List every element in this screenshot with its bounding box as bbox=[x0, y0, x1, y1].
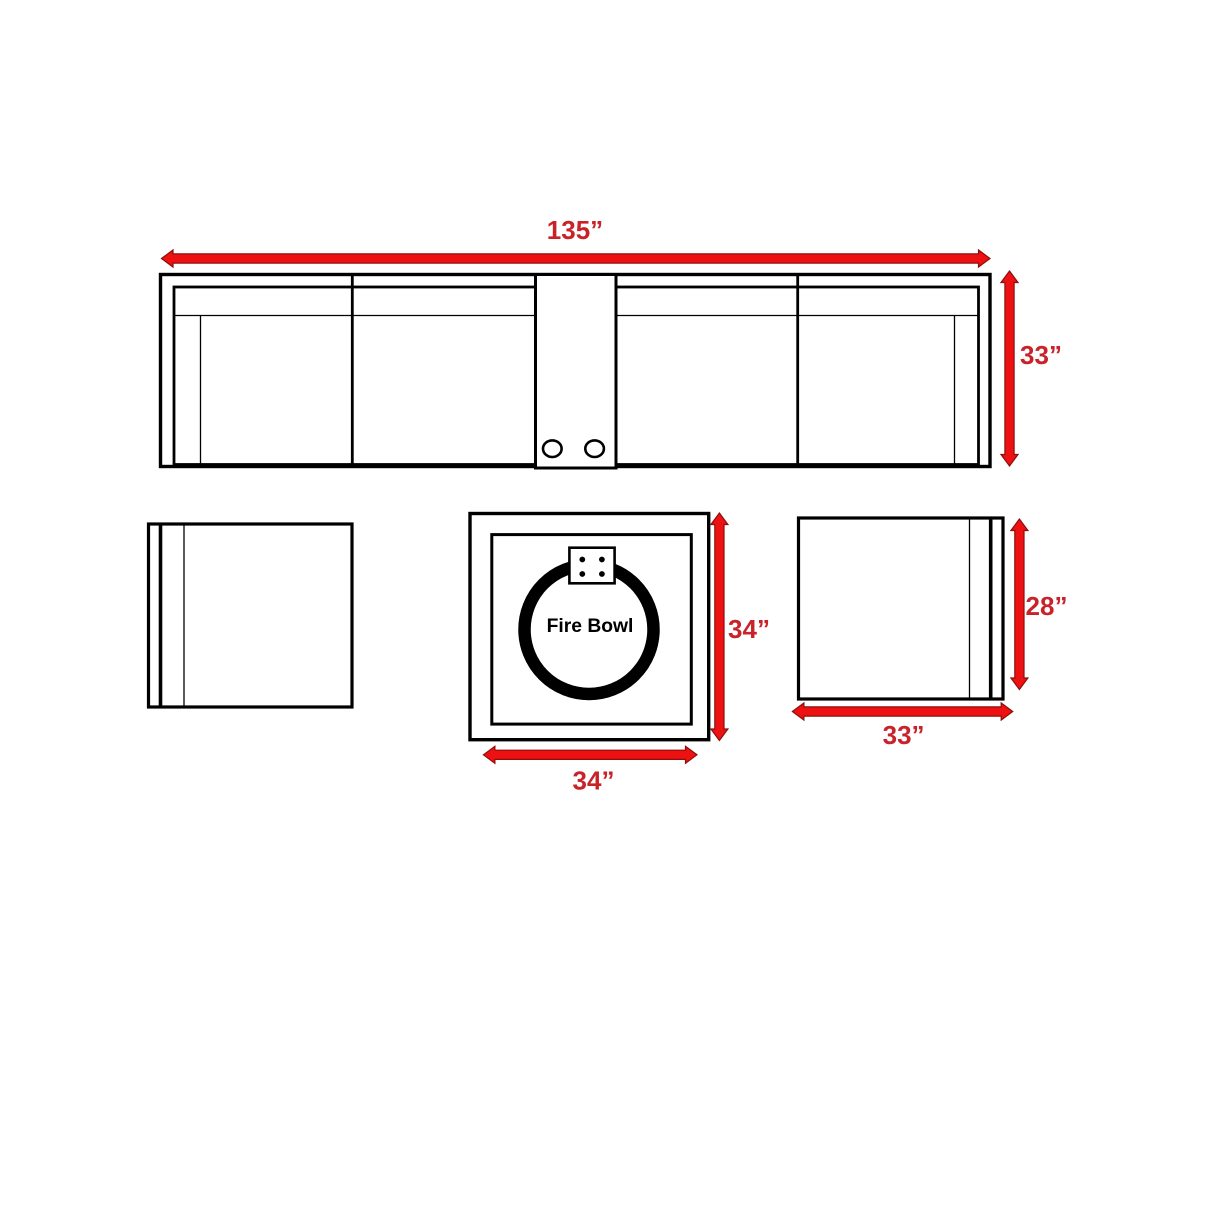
svg-text:33”: 33” bbox=[1020, 340, 1062, 370]
svg-text:28”: 28” bbox=[1026, 591, 1068, 621]
svg-text:34”: 34” bbox=[728, 614, 770, 644]
svg-text:33”: 33” bbox=[883, 720, 925, 750]
svg-text:135”: 135” bbox=[547, 215, 603, 245]
svg-text:34”: 34” bbox=[573, 766, 615, 796]
svg-text:Fire Bowl: Fire Bowl bbox=[547, 616, 634, 637]
